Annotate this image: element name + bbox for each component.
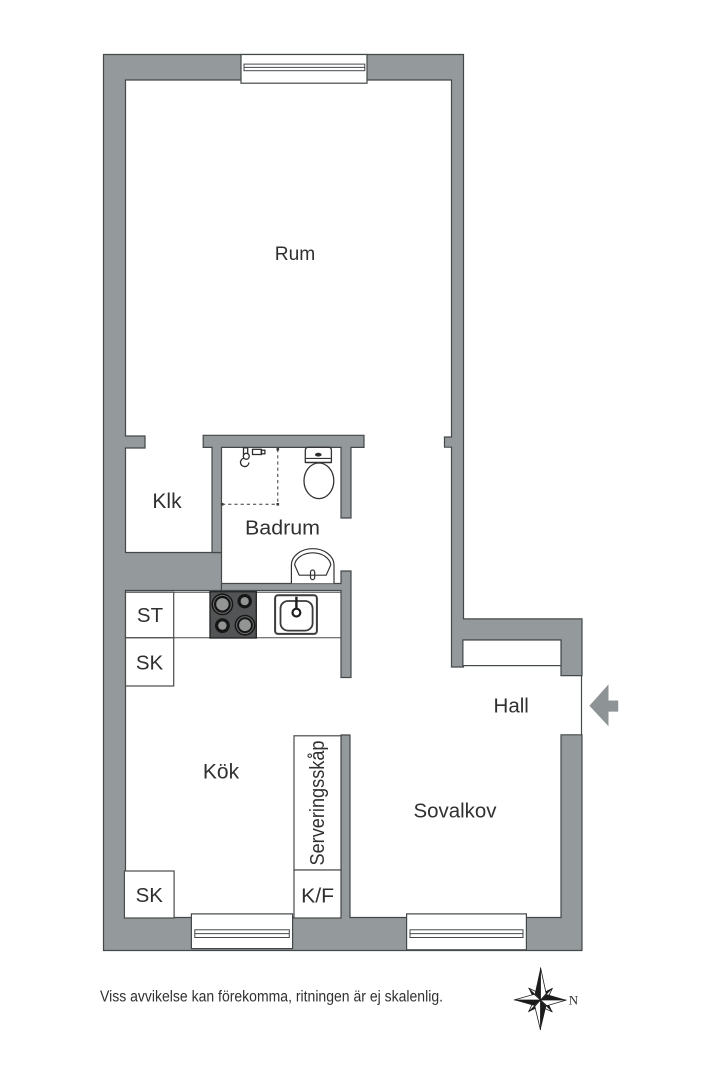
- svg-text:K/F: K/F: [301, 885, 334, 908]
- svg-text:N: N: [569, 993, 579, 1008]
- svg-text:SK: SK: [136, 652, 164, 675]
- svg-text:Viss avvikelse kan förekomma,: Viss avvikelse kan förekomma, ritningen …: [100, 989, 443, 1006]
- svg-text:Rum: Rum: [275, 244, 316, 265]
- svg-text:SK: SK: [136, 884, 164, 907]
- svg-text:Kök: Kök: [203, 761, 240, 784]
- svg-text:Hall: Hall: [494, 694, 529, 717]
- svg-text:Klk: Klk: [152, 490, 182, 513]
- svg-text:Serveringsskåp: Serveringsskåp: [307, 741, 329, 866]
- svg-text:ST: ST: [137, 604, 164, 627]
- svg-text:Sovalkov: Sovalkov: [414, 800, 498, 823]
- svg-text:Badrum: Badrum: [245, 517, 320, 540]
